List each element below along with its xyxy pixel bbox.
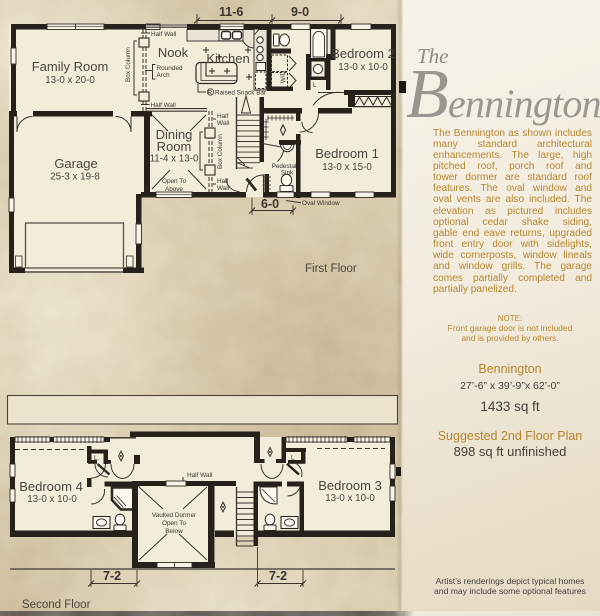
svg-text:Bedroom 4: Bedroom 4: [19, 479, 83, 494]
svg-text:Box Column: Box Column: [125, 47, 132, 82]
svg-text:Bedroom 3: Bedroom 3: [318, 478, 382, 493]
svg-text:Half: Half: [217, 113, 229, 120]
svg-text:13-0 x 20-0: 13-0 x 20-0: [45, 75, 95, 86]
svg-text:Wall: Wall: [217, 120, 229, 127]
svg-text:13-0 x 10-0: 13-0 x 10-0: [338, 62, 388, 73]
svg-text:Arch: Arch: [157, 72, 171, 79]
svg-text:First Floor: First Floor: [305, 263, 357, 275]
svg-text:Bedroom 2: Bedroom 2: [331, 46, 395, 61]
svg-text:Bedroom 1: Bedroom 1: [315, 146, 379, 161]
svg-text:L: L: [291, 455, 295, 462]
svg-text:Half Wall: Half Wall: [151, 31, 176, 38]
svg-text:13-0 x 10-0: 13-0 x 10-0: [325, 493, 375, 504]
svg-text:Raised Snack Bar: Raised Snack Bar: [215, 90, 267, 97]
svg-text:6-0: 6-0: [261, 197, 279, 211]
svg-text:Family Room: Family Room: [32, 59, 109, 74]
svg-text:Half Wall: Half Wall: [187, 472, 212, 479]
svg-text:Room: Room: [157, 139, 192, 154]
svg-text:Vaulted Dormer: Vaulted Dormer: [152, 512, 197, 519]
svg-text:Open To: Open To: [162, 178, 186, 185]
svg-text:Wall: Wall: [217, 185, 229, 192]
svg-text:Open To: Open To: [162, 520, 186, 527]
svg-text:R: R: [208, 89, 213, 96]
svg-text:Oval Window: Oval Window: [302, 200, 340, 207]
svg-text:7-2: 7-2: [103, 569, 121, 583]
svg-text:Half: Half: [217, 178, 229, 185]
svg-text:Garage: Garage: [54, 156, 97, 171]
svg-text:Rounded: Rounded: [157, 65, 183, 72]
svg-text:Half Wall: Half Wall: [151, 102, 176, 109]
svg-text:Below: Below: [165, 528, 183, 535]
svg-text:7-2: 7-2: [269, 569, 287, 583]
svg-text:Above: Above: [165, 186, 184, 193]
svg-text:W/D: W/D: [280, 70, 287, 83]
svg-text:L.: L.: [94, 455, 100, 462]
svg-text:Second Floor: Second Floor: [22, 599, 91, 611]
svg-text:25-3 x 19-8: 25-3 x 19-8: [50, 172, 100, 183]
svg-text:Nook: Nook: [158, 45, 189, 60]
svg-text:Box Column: Box Column: [217, 134, 224, 169]
svg-text:11-4 x 13-0: 11-4 x 13-0: [150, 154, 199, 165]
svg-text:L: L: [313, 82, 317, 89]
svg-text:9-0: 9-0: [291, 5, 309, 19]
svg-text:11-6: 11-6: [219, 5, 243, 19]
svg-text:13-0 x 10-0: 13-0 x 10-0: [27, 494, 77, 505]
svg-text:Kitchen: Kitchen: [206, 51, 249, 66]
svg-text:13-0 x 15-0: 13-0 x 15-0: [322, 162, 372, 173]
